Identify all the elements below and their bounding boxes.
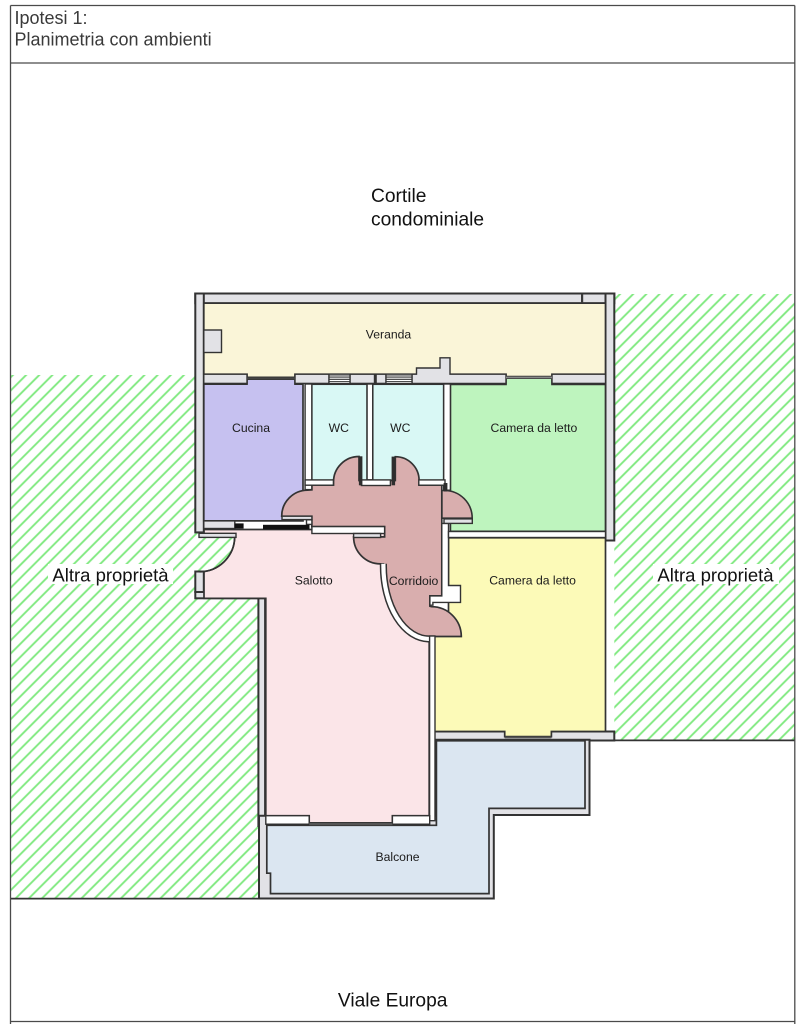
svg-text:Salotto: Salotto	[295, 574, 333, 588]
svg-text:Ipotesi 1:: Ipotesi 1:	[15, 8, 88, 28]
svg-text:Balcone: Balcone	[375, 850, 419, 864]
svg-text:Planimetria con ambienti: Planimetria con ambienti	[15, 30, 212, 50]
svg-text:Cortile: Cortile	[371, 186, 426, 207]
svg-text:Cucina: Cucina	[232, 421, 270, 435]
svg-text:Corridoio: Corridoio	[389, 574, 439, 588]
svg-text:Altra proprietà: Altra proprietà	[657, 565, 774, 586]
svg-text:Altra proprietà: Altra proprietà	[52, 565, 169, 586]
svg-text:Camera da letto: Camera da letto	[491, 421, 578, 435]
svg-text:condominiale: condominiale	[371, 210, 484, 231]
svg-text:WC: WC	[390, 421, 411, 435]
svg-text:WC: WC	[329, 421, 350, 435]
svg-text:Viale Europa: Viale Europa	[338, 991, 448, 1012]
svg-text:Camera da letto: Camera da letto	[489, 574, 576, 588]
svg-text:Veranda: Veranda	[366, 328, 412, 342]
